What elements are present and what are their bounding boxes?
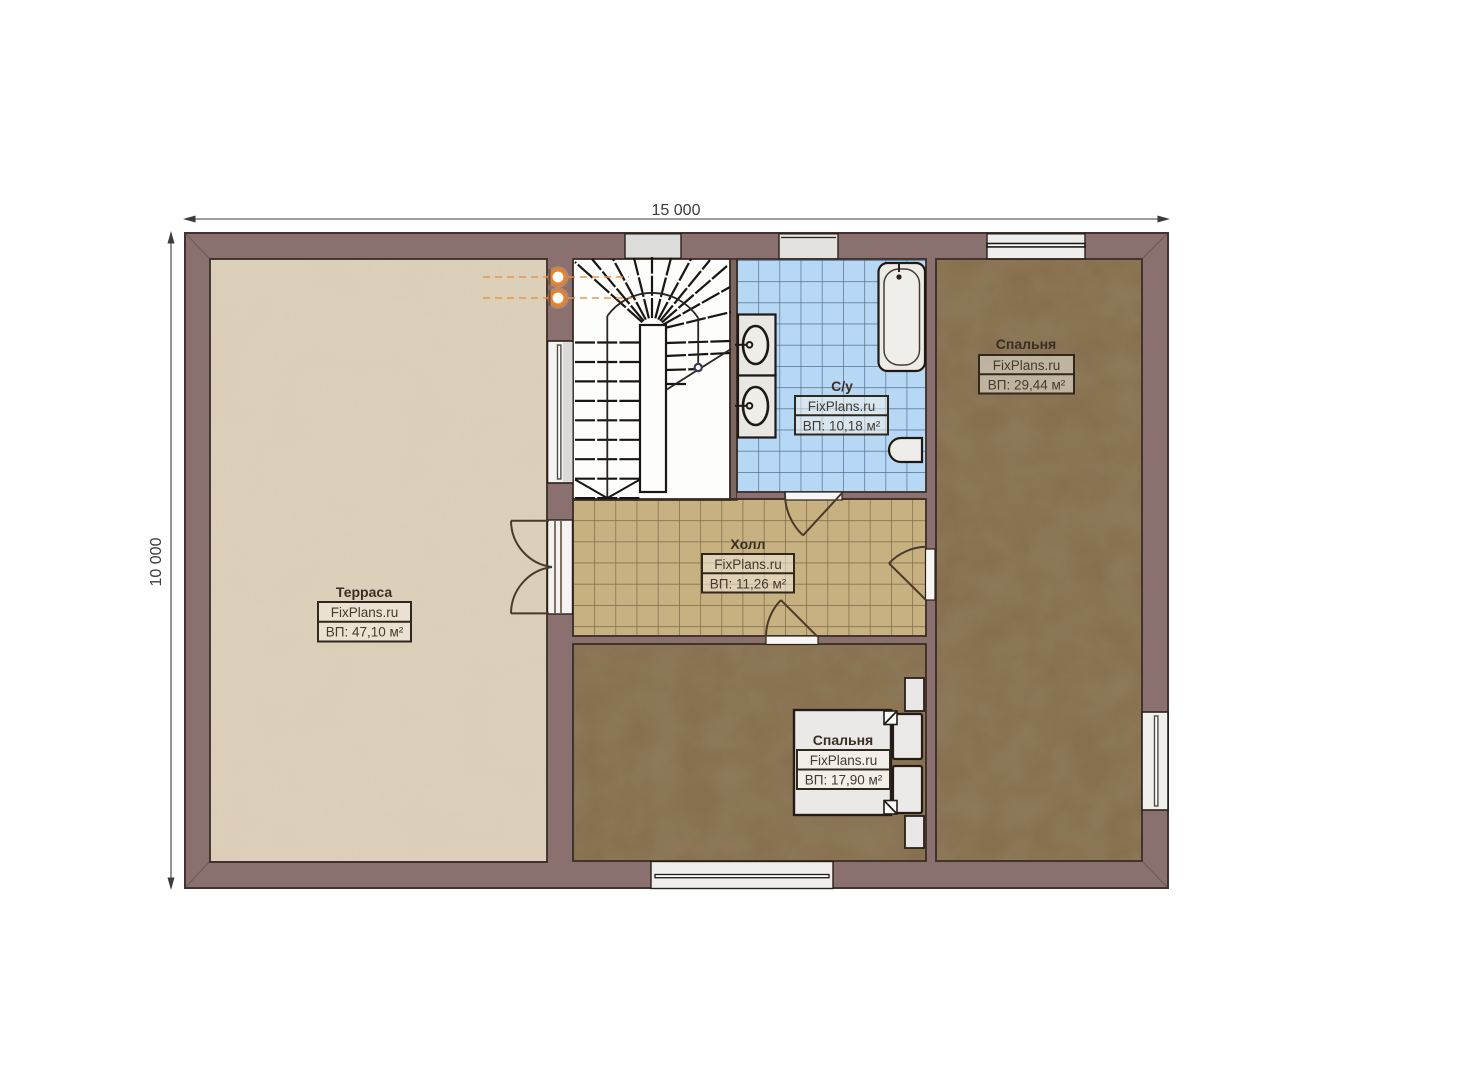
svg-text:Холл: Холл	[730, 536, 765, 552]
svg-text:10 000: 10 000	[148, 537, 165, 586]
svg-text:ВП: 17,90 м²: ВП: 17,90 м²	[805, 773, 883, 788]
svg-text:С/у: С/у	[831, 378, 853, 394]
svg-text:FixPlans.ru: FixPlans.ru	[331, 605, 399, 620]
svg-text:ВП: 10,18 м²: ВП: 10,18 м²	[803, 418, 881, 433]
svg-text:FixPlans.ru: FixPlans.ru	[810, 753, 878, 768]
svg-text:15 000: 15 000	[652, 202, 701, 219]
svg-text:Спальня: Спальня	[813, 732, 873, 748]
svg-text:ВП: 47,10 м²: ВП: 47,10 м²	[326, 625, 404, 640]
svg-text:FixPlans.ru: FixPlans.ru	[993, 358, 1061, 373]
svg-text:ВП: 11,26 м²: ВП: 11,26 м²	[710, 576, 787, 591]
svg-text:Терраса: Терраса	[336, 584, 392, 600]
svg-text:FixPlans.ru: FixPlans.ru	[714, 557, 782, 572]
svg-text:FixPlans.ru: FixPlans.ru	[808, 399, 876, 414]
svg-text:Спальня: Спальня	[996, 336, 1056, 352]
svg-text:ВП: 29,44 м²: ВП: 29,44 м²	[988, 377, 1066, 392]
